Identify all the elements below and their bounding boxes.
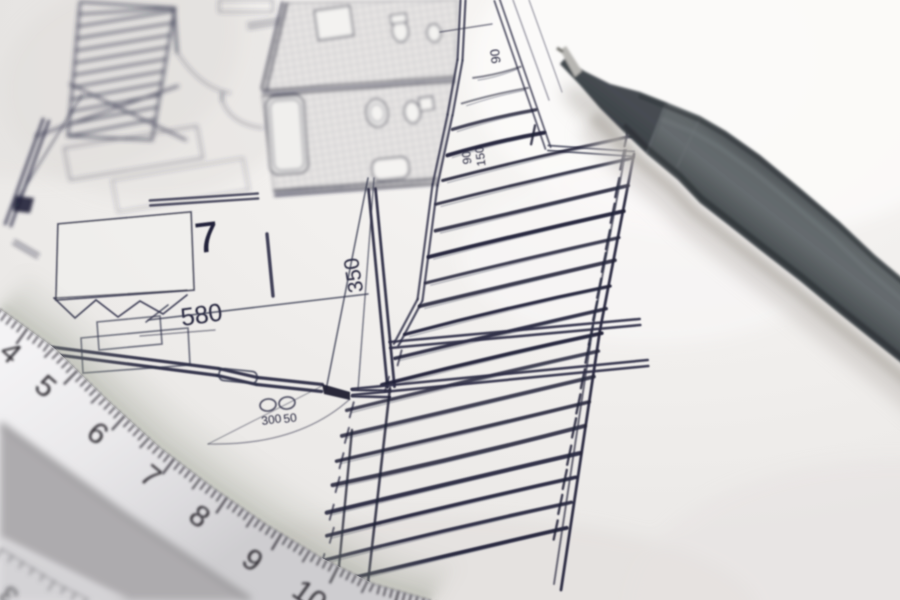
svg-text:90: 90 <box>487 48 504 64</box>
svg-text:300: 300 <box>260 411 282 428</box>
svg-text:50: 50 <box>282 410 297 426</box>
